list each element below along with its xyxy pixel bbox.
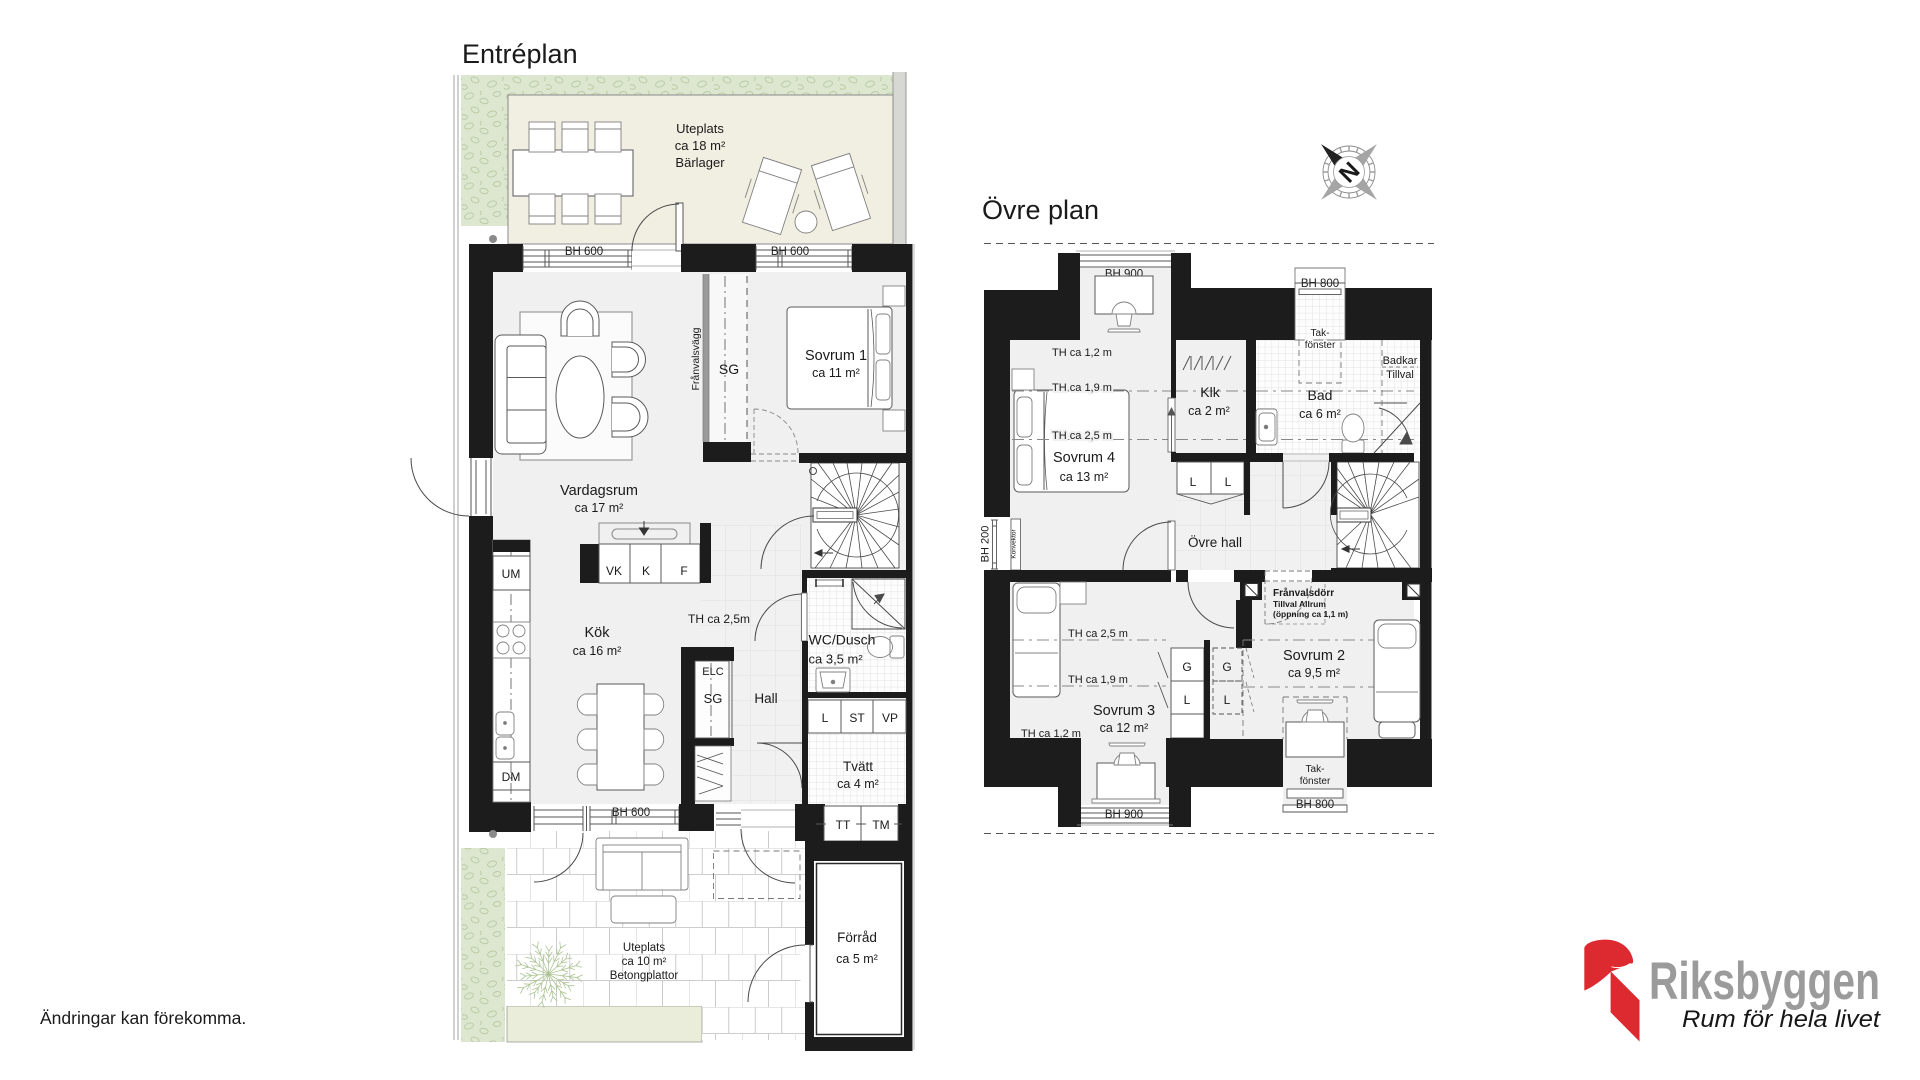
svg-text:ca 4 m²: ca 4 m² [837,777,879,791]
svg-text:ca 13 m²: ca 13 m² [1060,470,1109,484]
svg-text:ELC: ELC [702,666,723,678]
svg-text:G: G [1182,660,1191,674]
svg-text:BH 200: BH 200 [980,526,992,563]
svg-text:VP: VP [882,711,898,725]
svg-text:fönster: fönster [1305,340,1336,351]
svg-text:BH 600: BH 600 [565,246,603,258]
svg-text:fönster: fönster [1300,776,1331,787]
svg-text:TH ca 2,5m: TH ca 2,5m [688,612,750,626]
svg-text:Betongplattor: Betongplattor [610,970,679,982]
svg-text:Sovrum 4: Sovrum 4 [1053,450,1115,466]
svg-text:G: G [1222,660,1231,674]
svg-text:Övre hall: Övre hall [1188,535,1242,550]
svg-text:Sovrum 2: Sovrum 2 [1283,648,1345,664]
svg-text:ST: ST [849,711,865,725]
svg-text:Kök: Kök [585,625,611,641]
svg-text:Entréplan: Entréplan [462,39,578,69]
svg-text:Övre plan: Övre plan [982,195,1099,225]
svg-text:TH ca 1,2 m: TH ca 1,2 m [1052,347,1112,359]
svg-text:Rum för hela livet: Rum för hela livet [1682,1006,1881,1033]
svg-text:Tak-: Tak- [1306,764,1325,775]
svg-text:Konvektor: Konvektor [1011,529,1018,559]
svg-text:ca 16 m²: ca 16 m² [573,644,622,658]
svg-text:ca 10 m²: ca 10 m² [622,956,667,968]
svg-text:TH ca 2,5 m: TH ca 2,5 m [1052,430,1112,442]
svg-text:Frånvalsvägg: Frånvalsvägg [690,327,702,390]
svg-text:Tillval Allrum: Tillval Allrum [1273,599,1326,609]
svg-text:Riksbyggen: Riksbyggen [1649,952,1880,1011]
svg-text:Sovrum 1: Sovrum 1 [805,348,867,364]
svg-text:TM: TM [872,818,889,832]
svg-text:TT: TT [836,818,851,832]
svg-text:ca 3,5 m²: ca 3,5 m² [809,652,864,667]
svg-text:Ändringar kan förekomma.: Ändringar kan förekomma. [40,1008,246,1028]
svg-text:ca 9,5 m²: ca 9,5 m² [1288,666,1340,680]
svg-text:SG: SG [719,361,739,377]
svg-text:ca 17 m²: ca 17 m² [575,501,624,515]
svg-text:ca 18 m²: ca 18 m² [675,138,726,153]
svg-text:ca 6 m²: ca 6 m² [1299,407,1341,421]
svg-text:Tillval: Tillval [1386,369,1414,381]
svg-text:Sovrum 3: Sovrum 3 [1093,703,1155,719]
svg-text:L: L [1184,693,1191,707]
svg-text:TH ca 1,9 m: TH ca 1,9 m [1068,674,1128,686]
svg-text:L: L [1225,475,1232,489]
svg-text:BH 800: BH 800 [1301,278,1339,290]
svg-text:L: L [1224,693,1231,707]
svg-text:BH 800: BH 800 [1296,799,1334,811]
svg-text:Vardagsrum: Vardagsrum [560,483,638,499]
svg-text:F: F [680,564,687,578]
svg-text:DM: DM [502,770,521,784]
svg-text:ca 2 m²: ca 2 m² [1188,404,1230,418]
svg-text:Tvätt: Tvätt [843,759,873,774]
svg-text:Klk: Klk [1200,384,1220,400]
svg-text:SG: SG [704,691,723,706]
svg-text:Bad: Bad [1308,387,1333,403]
svg-text:TH ca 1,9 m: TH ca 1,9 m [1052,382,1112,394]
svg-text:Uteplats: Uteplats [676,121,724,136]
svg-text:Bärlager: Bärlager [675,155,725,170]
svg-text:Tak-: Tak- [1311,328,1330,339]
svg-text:K: K [642,564,650,578]
svg-text:BH 600: BH 600 [771,246,809,258]
svg-text:VK: VK [606,564,622,578]
svg-text:L: L [1190,475,1197,489]
svg-text:Hall: Hall [754,691,777,706]
svg-text:Förråd: Förråd [837,930,877,945]
svg-text:ca 5 m²: ca 5 m² [836,952,878,966]
svg-text:TH ca 2,5 m: TH ca 2,5 m [1068,628,1128,640]
svg-text:BH 600: BH 600 [612,807,650,819]
svg-text:ca 11 m²: ca 11 m² [812,366,860,380]
svg-text:Frånvalsdörr: Frånvalsdörr [1273,587,1334,599]
svg-text:Uteplats: Uteplats [623,942,665,954]
svg-text:Badkar: Badkar [1383,355,1418,367]
svg-text:L: L [822,711,829,725]
svg-text:ca 12 m²: ca 12 m² [1100,721,1149,735]
svg-text:BH 900: BH 900 [1105,809,1143,821]
svg-text:WC/Dusch: WC/Dusch [809,632,876,648]
svg-text:(öppning ca 1,1 m): (öppning ca 1,1 m) [1273,609,1348,619]
svg-text:UM: UM [502,567,521,581]
